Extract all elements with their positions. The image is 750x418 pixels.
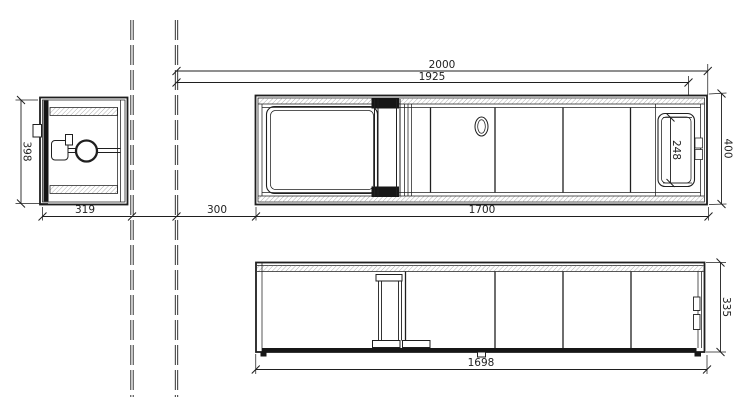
drain-lever-tab xyxy=(66,135,73,146)
drain-knob-circle xyxy=(76,141,97,162)
front-panel-seams xyxy=(406,272,632,349)
front-top-rail-hatch xyxy=(257,266,704,272)
dim-label-inner-length: 1925 xyxy=(419,71,446,83)
drawing-svg: 2000 1925 319 300 1700 400 xyxy=(0,0,750,418)
front-foot-right xyxy=(695,352,702,357)
centerline-left xyxy=(131,20,133,397)
dim-label-front-height: 335 xyxy=(720,297,732,317)
plan-deck-seams xyxy=(431,104,656,196)
dim-front-base-length: 1698 xyxy=(256,354,707,374)
dim-basin-inner-width: 248 xyxy=(663,118,692,184)
dim-label-front-base-length: 1698 xyxy=(468,357,495,369)
front-column-cap xyxy=(376,275,402,282)
dim-inner-length: 1925 xyxy=(177,71,689,95)
plan-partition xyxy=(372,98,412,197)
front-column xyxy=(373,275,431,348)
plan-outer-frame xyxy=(256,96,708,205)
dim-plan-width: 400 xyxy=(709,93,734,205)
centerline-right xyxy=(175,20,177,397)
side-drain-assembly xyxy=(52,135,121,162)
front-column-base-left xyxy=(373,341,401,348)
front-foot-left xyxy=(261,352,267,357)
plan-view xyxy=(256,96,708,205)
dim-label-plan-width: 400 xyxy=(722,138,734,158)
plan-drain-oval xyxy=(475,117,488,136)
technical-drawing-canvas: 2000 1925 319 300 1700 400 xyxy=(0,0,750,418)
front-column-base-right xyxy=(403,341,431,348)
front-view xyxy=(256,263,705,358)
side-front-panel xyxy=(44,101,49,202)
plan-rim-hatch-bottom xyxy=(258,196,705,202)
dim-label-basin-inner-width: 248 xyxy=(670,140,682,160)
dim-label-overall-length: 2000 xyxy=(429,59,456,71)
plan-basin-left xyxy=(267,107,378,194)
dim-label-body-length: 1700 xyxy=(469,204,496,216)
plan-hinge-clip-top xyxy=(695,138,703,148)
side-rim-hatch-bottom xyxy=(50,186,118,194)
side-rim-hatch-top xyxy=(50,108,118,116)
front-outer-frame xyxy=(256,263,705,353)
plan-hinge-clip-bottom xyxy=(695,150,703,160)
dim-front-height: 335 xyxy=(706,263,732,353)
dim-side-height: 398 xyxy=(16,100,49,204)
dim-bottom-row: 319 300 1700 xyxy=(43,204,709,221)
side-view xyxy=(33,98,128,205)
front-base-strip xyxy=(262,348,697,352)
dim-label-side-height: 398 xyxy=(21,141,33,161)
dim-label-left-offset: 300 xyxy=(207,204,227,216)
dim-label-side-width: 319 xyxy=(75,204,95,216)
plan-rim-hatch-top xyxy=(258,98,705,104)
side-wall-tab xyxy=(33,125,42,138)
front-end-clips xyxy=(694,297,701,330)
